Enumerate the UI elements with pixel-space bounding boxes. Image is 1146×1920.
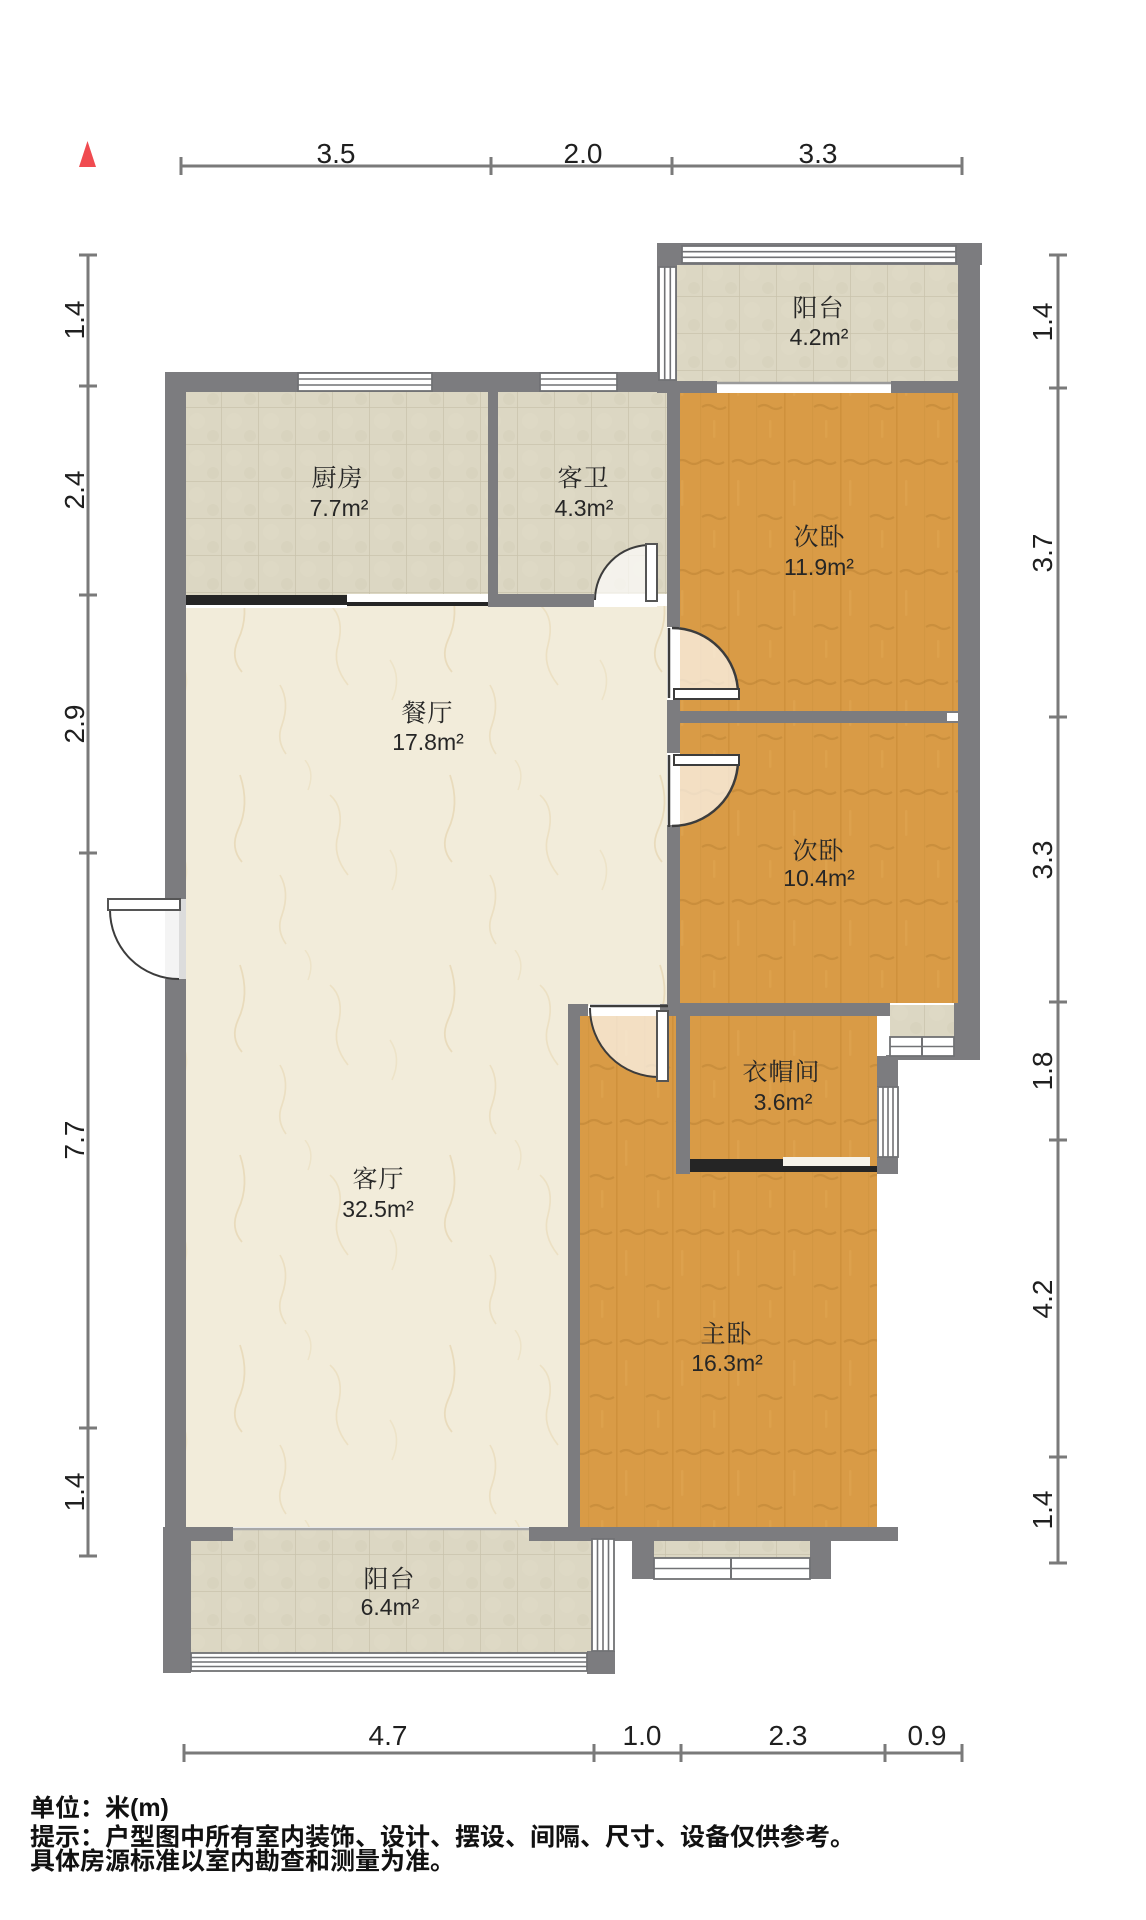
svg-text:1.8: 1.8 [1027,1052,1058,1091]
svg-text:1.4: 1.4 [59,301,90,340]
svg-text:11.9m²: 11.9m² [784,554,854,580]
svg-text:4.7: 4.7 [369,1720,408,1751]
svg-text:3.3: 3.3 [1027,841,1058,880]
svg-text:17.8m²: 17.8m² [392,729,464,755]
svg-text:0.9: 0.9 [908,1720,947,1751]
svg-text:10.4m²: 10.4m² [783,865,855,891]
svg-text:1.0: 1.0 [623,1720,662,1751]
svg-text:3.7: 3.7 [1027,534,1058,573]
svg-text:6.4m²: 6.4m² [361,1594,420,1620]
svg-text:32.5m²: 32.5m² [342,1196,414,1222]
svg-text:7.7: 7.7 [59,1121,90,1160]
svg-text:7.7m²: 7.7m² [310,495,369,521]
svg-text:2.4: 2.4 [59,471,90,510]
svg-text:3.6m²: 3.6m² [754,1089,813,1115]
svg-text:2.0: 2.0 [564,138,603,169]
svg-text:1.4: 1.4 [1027,1491,1058,1530]
svg-text:4.3m²: 4.3m² [555,495,614,521]
svg-text:4.2: 4.2 [1027,1280,1058,1319]
svg-text:1.4: 1.4 [59,1473,90,1512]
svg-text:3.3: 3.3 [799,138,838,169]
svg-text:2.9: 2.9 [59,705,90,744]
svg-text:3.5: 3.5 [317,138,356,169]
svg-text:2.3: 2.3 [769,1720,808,1751]
svg-text:4.2m²: 4.2m² [790,324,849,350]
svg-text:(m): (m) [130,1794,169,1822]
svg-text:1.4: 1.4 [1027,303,1058,342]
svg-text:16.3m²: 16.3m² [691,1350,763,1376]
